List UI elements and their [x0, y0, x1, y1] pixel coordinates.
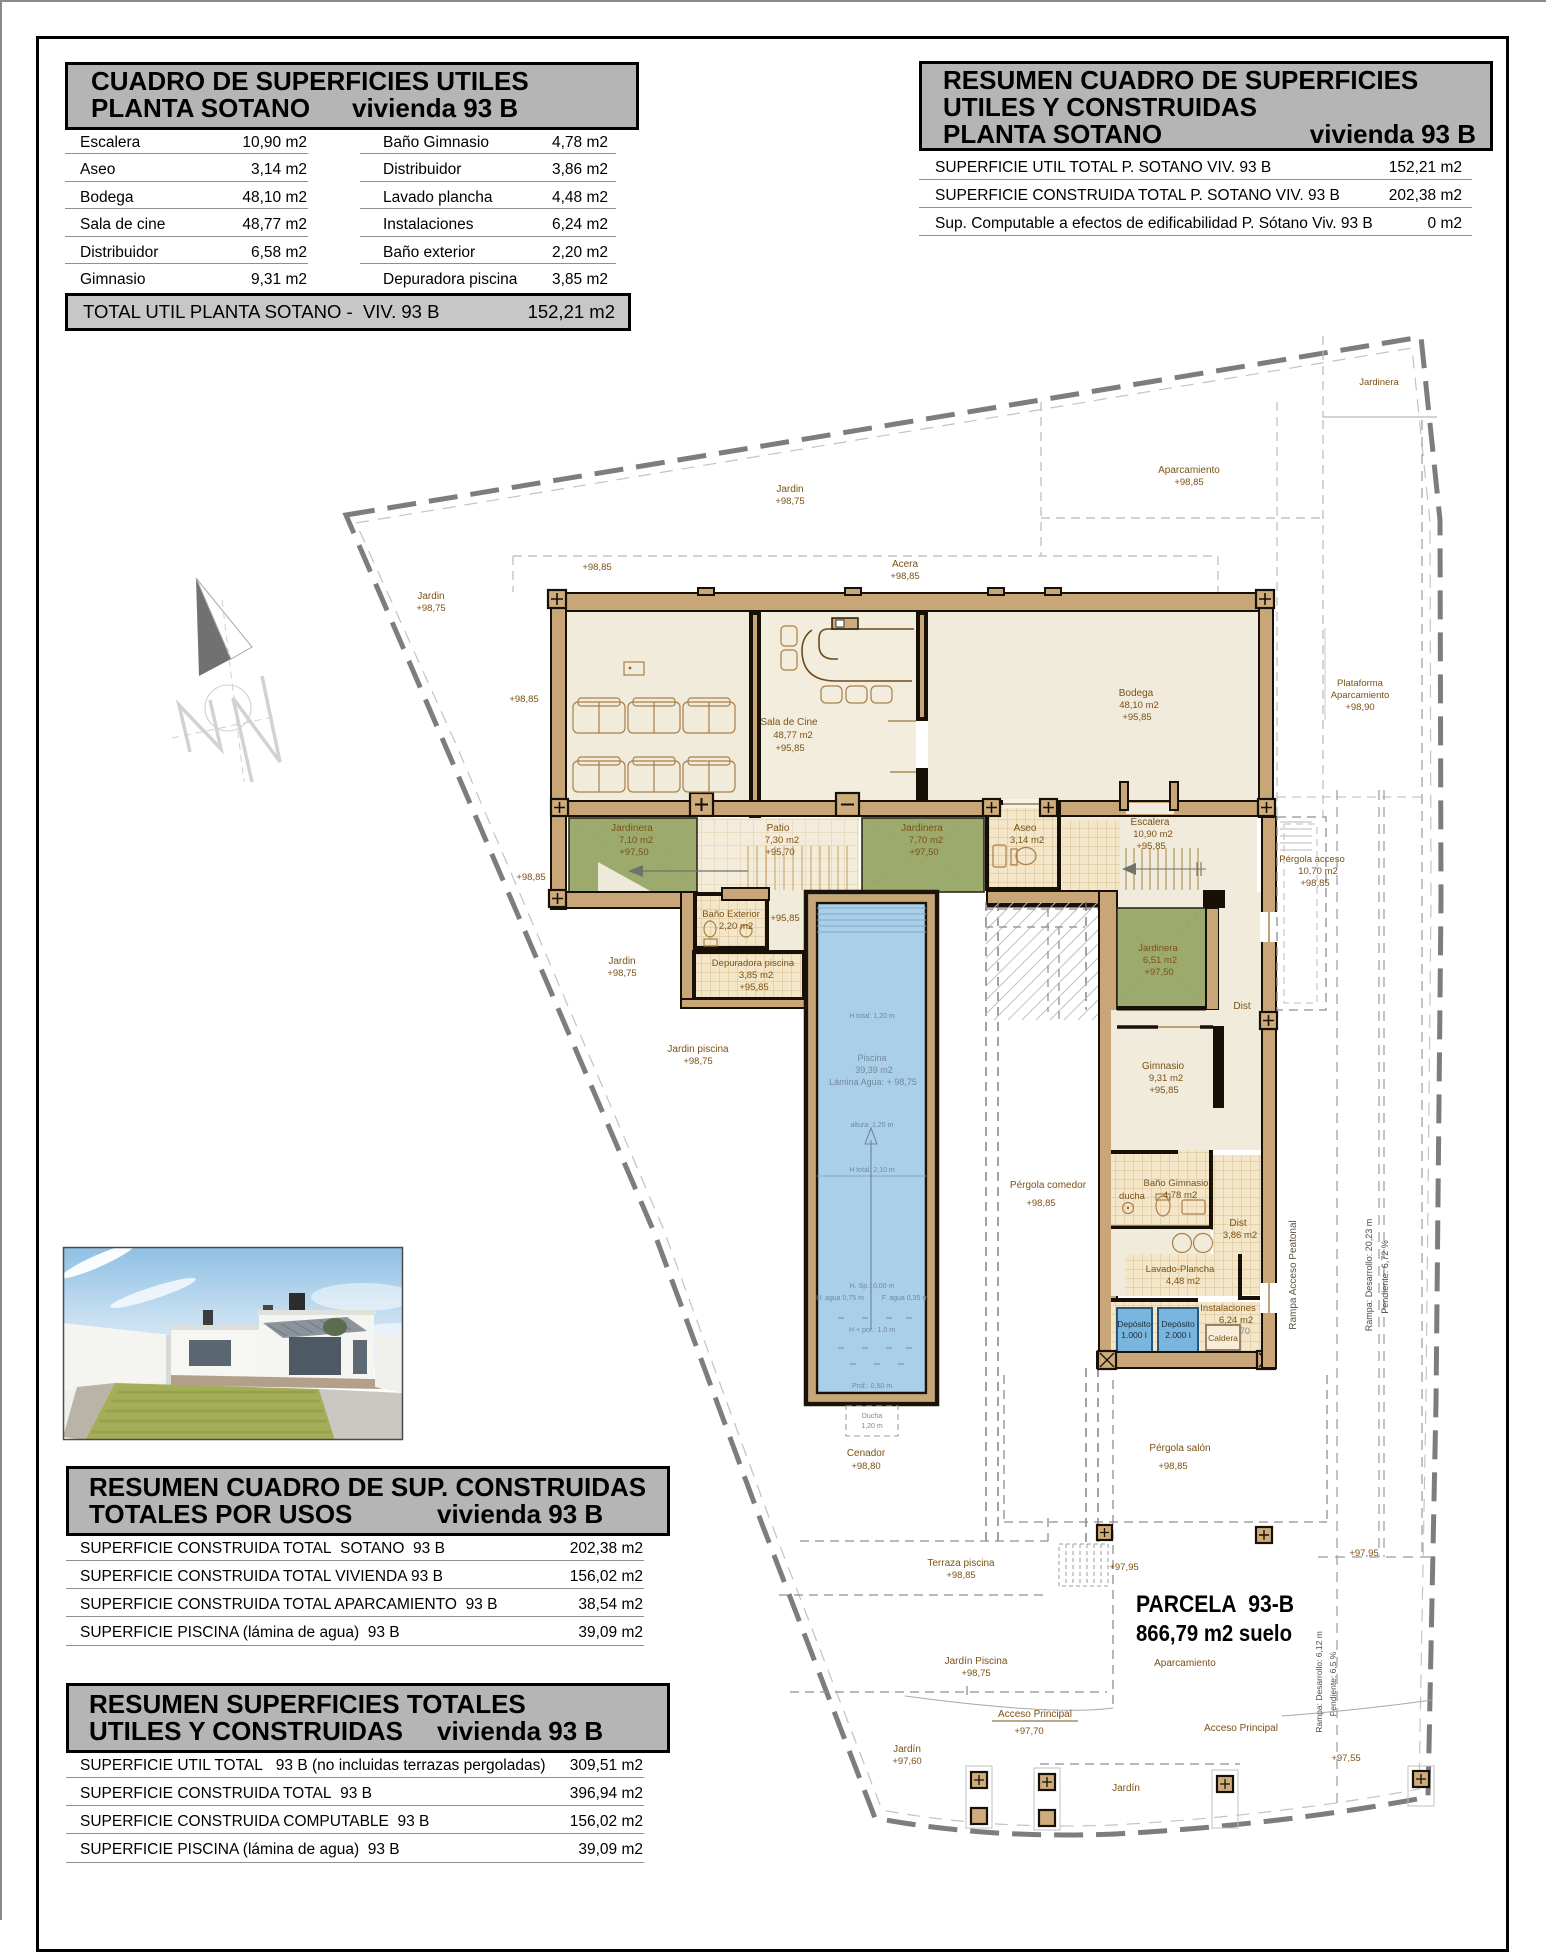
- svg-text:Jardín: Jardín: [1112, 1783, 1140, 1794]
- svg-text:+95,85: +95,85: [1122, 712, 1151, 723]
- svg-text:+98,85: +98,85: [582, 562, 611, 573]
- svg-text:7,10 m2: 7,10 m2: [619, 835, 653, 846]
- svg-text:+97,60: +97,60: [892, 1756, 921, 1767]
- svg-text:866,79 m2 suelo: 866,79 m2 suelo: [1136, 1620, 1292, 1646]
- svg-text:10,70 m2: 10,70 m2: [1298, 866, 1338, 877]
- svg-text:Baño Exterior: Baño Exterior: [702, 909, 760, 920]
- svg-text:Escalera: Escalera: [1131, 817, 1170, 828]
- svg-text:Bodega: Bodega: [1119, 688, 1154, 699]
- svg-text:3,85 m2: 3,85 m2: [739, 970, 773, 981]
- svg-text:Jardín: Jardín: [893, 1744, 921, 1755]
- svg-text:3,86 m2: 3,86 m2: [1223, 1230, 1257, 1241]
- svg-text:Lámina Agua: + 98,75: Lámina Agua: + 98,75: [829, 1077, 917, 1087]
- svg-text:Jardin: Jardin: [608, 956, 635, 967]
- svg-text:+95,85: +95,85: [770, 913, 799, 924]
- svg-text:Sala de Cine: Sala de Cine: [760, 717, 818, 728]
- svg-text:Pérgola comedor: Pérgola comedor: [1010, 1180, 1087, 1191]
- svg-text:Patio: Patio: [767, 823, 790, 834]
- svg-text:ducha: ducha: [1119, 1191, 1146, 1202]
- svg-text:+97,95: +97,95: [1349, 1548, 1378, 1559]
- svg-text:H total: 2,10 m: H total: 2,10 m: [849, 1167, 895, 1174]
- svg-text:Prof.: 0,50 m: Prof.: 0,50 m: [852, 1383, 892, 1390]
- svg-text:+98,80: +98,80: [851, 1461, 880, 1472]
- svg-text:Jardin piscina: Jardin piscina: [667, 1044, 729, 1055]
- svg-text:+98,75: +98,75: [607, 968, 636, 979]
- svg-text:Pendiente: 6,5 %: Pendiente: 6,5 %: [1328, 1651, 1338, 1716]
- svg-text:Acera: Acera: [892, 559, 919, 570]
- svg-text:Jardinera: Jardinera: [1138, 943, 1178, 954]
- svg-text:1,20 m: 1,20 m: [861, 1423, 883, 1430]
- svg-text:Rampa Acceso Peatonal: Rampa Acceso Peatonal: [1288, 1220, 1299, 1330]
- svg-text:Caldera: Caldera: [1208, 1333, 1238, 1343]
- svg-text:Pendiente: 6,72 %: Pendiente: 6,72 %: [1380, 1240, 1390, 1314]
- svg-text:Rampa: Desarrollo: 20,23 m: Rampa: Desarrollo: 20,23 m: [1364, 1219, 1374, 1332]
- svg-text:Depósito: Depósito: [1117, 1319, 1151, 1329]
- svg-text:+97,95: +97,95: [1109, 1562, 1138, 1573]
- svg-text:+97,50: +97,50: [619, 847, 648, 858]
- svg-text:+98,75: +98,75: [416, 603, 445, 614]
- svg-text:Plataforma: Plataforma: [1337, 678, 1384, 689]
- svg-text:+98,75: +98,75: [775, 496, 804, 507]
- svg-text:+98,85: +98,85: [516, 872, 545, 883]
- svg-text:+98,85: +98,85: [1158, 1461, 1187, 1472]
- svg-text:+98,85: +98,85: [509, 694, 538, 705]
- svg-text:H total: 1,20 m: H total: 1,20 m: [849, 1013, 895, 1020]
- svg-text:7,70 m2: 7,70 m2: [909, 835, 943, 846]
- svg-text:Pérgola salón: Pérgola salón: [1149, 1443, 1210, 1454]
- svg-text:+97,50: +97,50: [1144, 967, 1173, 978]
- svg-text:Jardinera: Jardinera: [901, 823, 943, 834]
- svg-text:Piscina: Piscina: [857, 1053, 886, 1063]
- svg-text:+98,85: +98,85: [946, 1570, 975, 1581]
- svg-text:+98,75: +98,75: [961, 1668, 990, 1679]
- svg-text:+95,70: +95,70: [765, 847, 794, 858]
- svg-text:H. Sp.: 0,00 m: H. Sp.: 0,00 m: [850, 1283, 895, 1290]
- svg-text:Lavado-Plancha: Lavado-Plancha: [1146, 1264, 1215, 1275]
- svg-text:Terraza piscina: Terraza piscina: [927, 1558, 995, 1569]
- svg-text:Jardin: Jardin: [417, 591, 444, 602]
- svg-text:4,78 m2: 4,78 m2: [1163, 1190, 1197, 1201]
- svg-text:Jardin: Jardin: [776, 484, 803, 495]
- svg-text:3,14 m2: 3,14 m2: [1010, 835, 1044, 846]
- svg-text:Instalaciones: Instalaciones: [1200, 1303, 1256, 1314]
- svg-text:48,10 m2: 48,10 m2: [1119, 700, 1159, 711]
- svg-text:Aparcamiento: Aparcamiento: [1331, 690, 1390, 701]
- svg-text:Acceso Principal: Acceso Principal: [998, 1709, 1072, 1720]
- svg-text:+95,85: +95,85: [1136, 841, 1165, 852]
- svg-text:Jardinera: Jardinera: [1359, 377, 1399, 388]
- svg-text:Baño Gimnasio: Baño Gimnasio: [1144, 1178, 1209, 1189]
- svg-text:+98,85: +98,85: [1026, 1198, 1055, 1209]
- svg-text:6,51 m2: 6,51 m2: [1143, 955, 1177, 966]
- svg-text:9,31 m2: 9,31 m2: [1149, 1073, 1183, 1084]
- svg-text:Gimnasio: Gimnasio: [1142, 1061, 1185, 1072]
- svg-text:Dist: Dist: [1229, 1218, 1246, 1229]
- svg-text:+98,85: +98,85: [1174, 477, 1203, 488]
- svg-text:+97,50: +97,50: [909, 847, 938, 858]
- svg-text:7,30 m2: 7,30 m2: [765, 835, 799, 846]
- svg-text:Cenador: Cenador: [847, 1448, 886, 1459]
- svg-text:+98,75: +98,75: [683, 1056, 712, 1067]
- svg-text:+95,85: +95,85: [1149, 1085, 1178, 1096]
- svg-text:altura: 1,20 m: altura: 1,20 m: [851, 1122, 894, 1129]
- svg-text:+98,90: +98,90: [1345, 702, 1374, 713]
- svg-text:Aparcamiento: Aparcamiento: [1158, 465, 1220, 476]
- svg-text:48,77 m2: 48,77 m2: [773, 730, 813, 741]
- svg-text:Rampa: Desarrollo: 6,12 m: Rampa: Desarrollo: 6,12 m: [1314, 1631, 1324, 1733]
- svg-text:+95,85: +95,85: [739, 982, 768, 993]
- svg-text:39,39 m2: 39,39 m2: [855, 1065, 893, 1075]
- svg-text:2,20 m2: 2,20 m2: [719, 921, 753, 932]
- svg-text:PARCELA 93-B: PARCELA 93-B: [1136, 1591, 1294, 1618]
- svg-text:1.000 l: 1.000 l: [1121, 1330, 1147, 1340]
- svg-text:Jardinera: Jardinera: [611, 823, 653, 834]
- svg-text:Jardín Piscina: Jardín Piscina: [945, 1656, 1008, 1667]
- svg-text:H. agua 0,75 m: H. agua 0,75 m: [816, 1295, 864, 1302]
- svg-text:H + por.: 1,0 m: H + por.: 1,0 m: [849, 1327, 895, 1334]
- svg-text:F. agua 0,35 m: F. agua 0,35 m: [882, 1295, 928, 1302]
- svg-text:+98,85: +98,85: [1300, 878, 1329, 889]
- svg-text:Depuradora piscina: Depuradora piscina: [712, 958, 795, 969]
- svg-text:Acceso Principal: Acceso Principal: [1204, 1723, 1278, 1734]
- svg-text:Ducha: Ducha: [862, 1413, 882, 1420]
- svg-text:Aparcamiento: Aparcamiento: [1154, 1658, 1216, 1669]
- svg-text:4,48 m2: 4,48 m2: [1166, 1276, 1200, 1287]
- svg-text:Aseo: Aseo: [1014, 823, 1037, 834]
- svg-text:2.000 l: 2.000 l: [1165, 1330, 1191, 1340]
- svg-text:10,90 m2: 10,90 m2: [1133, 829, 1173, 840]
- svg-text:+95,85: +95,85: [775, 743, 804, 754]
- svg-text:+97,70: +97,70: [1014, 1726, 1043, 1737]
- svg-text:Depósito: Depósito: [1161, 1319, 1195, 1329]
- svg-text:Pérgola acceso: Pérgola acceso: [1279, 854, 1344, 865]
- svg-text:+98,85: +98,85: [890, 571, 919, 582]
- svg-text:+97,55: +97,55: [1331, 1753, 1360, 1764]
